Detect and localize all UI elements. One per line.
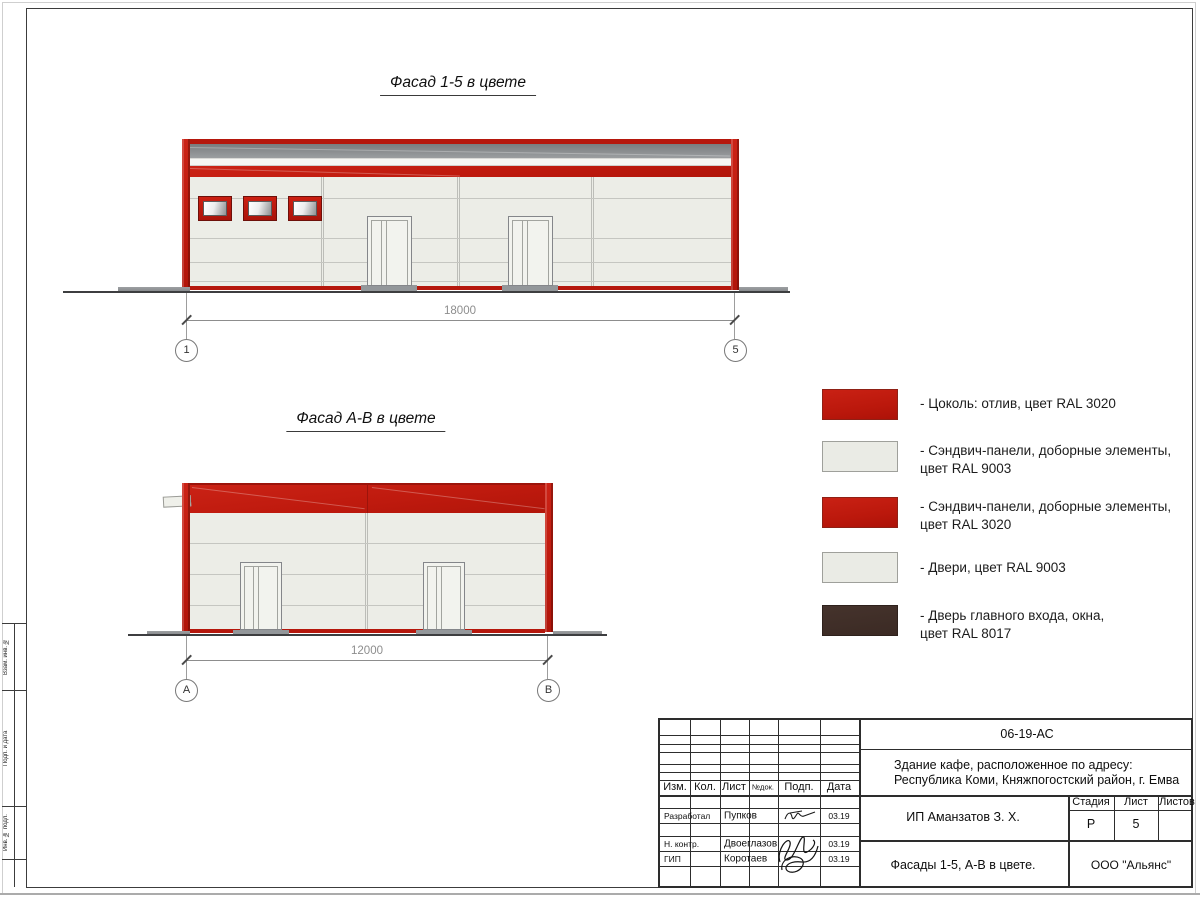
sheets-header: Листов	[1159, 796, 1195, 808]
title-block-line	[660, 836, 859, 837]
legend-label: цвет RAL 8017	[920, 626, 1011, 641]
column-header-kol: Кол.	[694, 781, 716, 793]
company-name: ООО "Альянс"	[1091, 858, 1171, 872]
date-value: 03.19	[828, 839, 849, 849]
document-number: 06-19-АС	[1000, 727, 1053, 741]
panel-joint-v	[321, 177, 324, 286]
legend-label: - Дверь главного входа, окна,	[920, 608, 1104, 623]
title-block-line	[660, 772, 859, 773]
person-name: Двоеглазов	[724, 839, 777, 850]
bottom-edge-line	[0, 893, 1200, 895]
window	[243, 196, 277, 221]
door-mullion	[522, 220, 528, 285]
sheet-title: Фасады 1-5, А-В в цвете.	[890, 858, 1035, 872]
parapet-white-strip	[184, 158, 737, 166]
ground-line	[63, 291, 790, 293]
project-address-line1: Здание кафе, расположенное по адресу:	[894, 758, 1133, 772]
door-mullion	[436, 566, 442, 629]
fascia-band	[182, 166, 739, 177]
panel-joint-v	[457, 177, 460, 286]
window-glass	[293, 201, 317, 216]
window-glass	[248, 201, 272, 216]
title-block-line	[1114, 795, 1115, 840]
legend-label: цвет RAL 3020	[920, 517, 1011, 532]
legend-label: - Двери, цвет RAL 9003	[920, 560, 1066, 575]
client-name: ИП Аманзатов З. Х.	[906, 810, 1020, 824]
title-block-line	[660, 795, 859, 797]
legend-swatch-doors	[822, 552, 898, 583]
side-stamp-divider	[14, 623, 15, 887]
door	[508, 216, 553, 286]
pilaster-left	[182, 139, 190, 290]
wall-panels	[190, 177, 731, 286]
dimension-line	[186, 320, 735, 321]
door	[240, 562, 282, 630]
title-block-line	[660, 851, 859, 852]
person-name: Пупков	[724, 811, 757, 822]
side-stamp-label: Взам. инв. №	[3, 625, 13, 688]
signature	[772, 832, 822, 876]
legend-label: - Сэндвич-панели, доборные элементы,	[920, 443, 1171, 458]
facade-1-5-title: Фасад 1-5 в цвете	[380, 74, 536, 96]
door-frame	[244, 566, 278, 629]
date-value: 03.19	[828, 854, 849, 864]
stage-header: Стадия	[1072, 796, 1110, 808]
facade-a-b-title: Фасад А-В в цвете	[286, 410, 445, 432]
pilaster-right	[731, 139, 739, 290]
axis-bubble-b: В	[537, 679, 560, 702]
person-name: Коротаев	[724, 854, 767, 865]
dimension-line	[186, 660, 548, 661]
axis-extension-line	[186, 293, 187, 339]
panel-joint-v	[365, 513, 368, 630]
date-value: 03.19	[828, 811, 849, 821]
column-header-data: Дата	[827, 781, 851, 793]
title-block-line	[660, 735, 859, 736]
drawing-sheet: Взам. инв. № Подп. и дата Инв. № подл. Ф…	[0, 0, 1200, 900]
legend-swatch-entrance	[822, 605, 898, 636]
door-mullion	[253, 566, 259, 629]
plinth-strip	[190, 286, 731, 290]
pilaster-left	[182, 483, 190, 632]
sheet-header: Лист	[1124, 796, 1148, 808]
title-block-line	[660, 764, 859, 765]
column-header-izm: Изм.	[663, 781, 687, 793]
legend-swatch-panels-white	[822, 441, 898, 472]
role-label: Н. контр.	[664, 839, 699, 849]
door	[367, 216, 412, 286]
title-block-line	[660, 752, 859, 753]
side-stamp-label: Подп. и дата	[3, 692, 13, 804]
dimension-label: 18000	[444, 305, 476, 317]
title-block-line	[660, 823, 859, 824]
door-mullion	[381, 220, 387, 285]
door-frame	[427, 566, 461, 629]
title-block-line	[859, 749, 1191, 750]
signature	[782, 809, 818, 823]
door-frame	[512, 220, 549, 285]
window	[198, 196, 232, 221]
panel-joint-h	[190, 281, 731, 282]
panel-joint-h	[190, 238, 731, 239]
legend-label: - Цоколь: отлив, цвет RAL 3020	[920, 396, 1116, 411]
legend-swatch-panels-red	[822, 497, 898, 528]
panel-joint-v	[591, 177, 594, 286]
title-block-line	[859, 720, 861, 886]
column-header-list: Лист	[722, 781, 746, 793]
panel-joint-h	[190, 543, 545, 544]
window	[288, 196, 322, 221]
axis-bubble-1: 1	[175, 339, 198, 362]
door-frame	[371, 220, 408, 285]
title-block-line	[1068, 810, 1191, 811]
window-glass	[203, 201, 227, 216]
legend-label: цвет RAL 9003	[920, 461, 1011, 476]
axis-extension-line	[734, 293, 735, 339]
title-block: Изм. Кол. Лист №док. Подп. Дата Разработ…	[658, 718, 1193, 888]
dimension-label: 12000	[351, 645, 383, 657]
legend-swatch-plinth	[822, 389, 898, 420]
title-block-line	[660, 866, 859, 867]
title-block-line	[859, 840, 1191, 842]
axis-bubble-5: 5	[724, 339, 747, 362]
door	[423, 562, 465, 630]
panel-joint-h	[190, 262, 731, 263]
stage-value: Р	[1087, 817, 1095, 831]
legend: - Цоколь: отлив, цвет RAL 3020 - Сэндвич…	[822, 389, 1192, 649]
side-stamp-label: Инв. № подл.	[3, 808, 13, 857]
column-header-dok: №док.	[752, 783, 774, 792]
axis-bubble-a: А	[175, 679, 198, 702]
pilaster-right	[545, 483, 553, 632]
title-block-line	[660, 744, 859, 745]
title-block-line	[660, 808, 859, 809]
sheet-number: 5	[1133, 817, 1140, 831]
column-header-podp: Подп.	[784, 781, 813, 793]
panel-joint-v	[367, 483, 368, 513]
role-label: Разработал	[664, 811, 710, 821]
ground-line	[128, 634, 607, 636]
project-address-line2: Республика Коми, Княжпогостский район, г…	[894, 773, 1179, 787]
role-label: ГИП	[664, 854, 681, 864]
legend-label: - Сэндвич-панели, доборные элементы,	[920, 499, 1171, 514]
